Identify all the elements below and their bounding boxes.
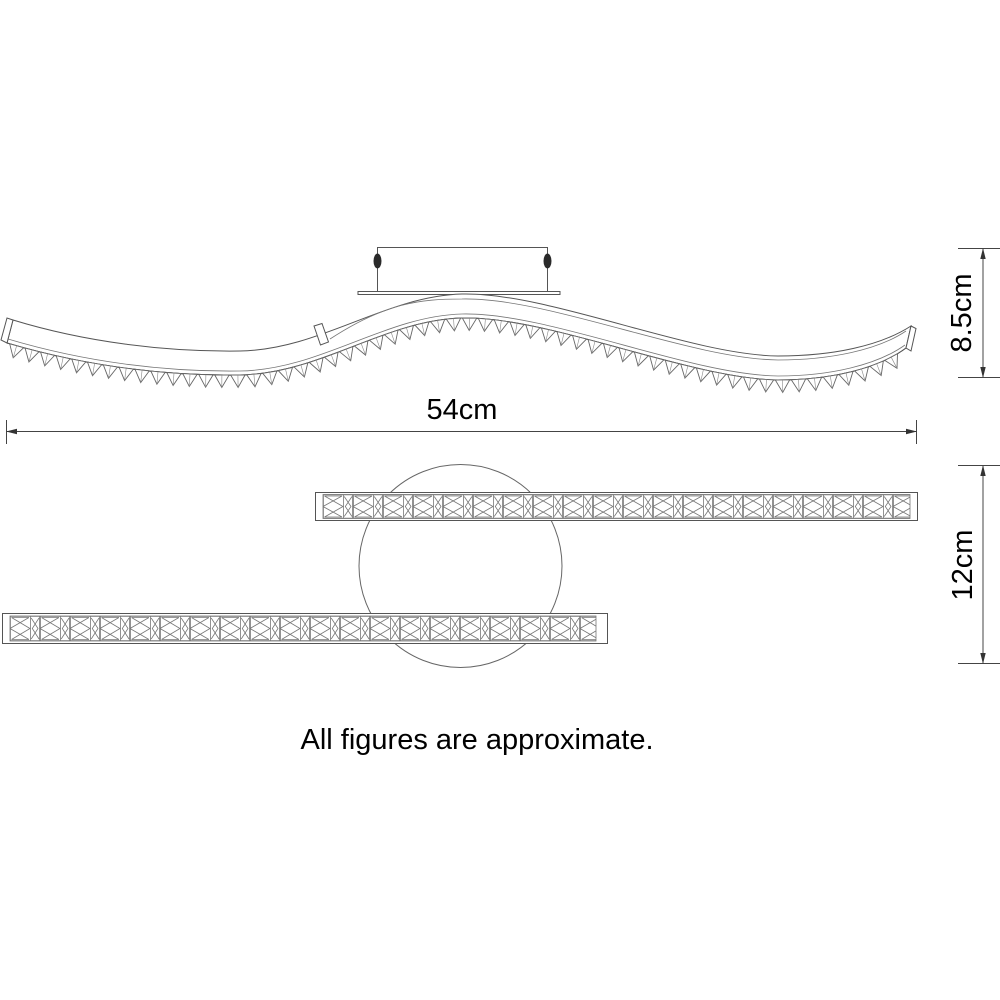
crystal-bar-lower xyxy=(3,614,608,644)
dimension-8-5cm-arrow-top xyxy=(980,248,985,259)
dimension-8-5cm-label: 8.5cm xyxy=(946,274,978,353)
diagram-canvas: 54cm 8.5cm 12cm All figures are approxim… xyxy=(0,0,1000,1000)
dimension-12cm-arrow-top xyxy=(980,465,985,476)
wave-fixture-side-view xyxy=(1,294,916,393)
mount-clip-right xyxy=(544,254,552,269)
dimension-54cm: 54cm xyxy=(6,394,917,444)
dimension-diagram: 54cm 8.5cm 12cm All figures are approxim… xyxy=(0,0,1000,1000)
dimension-12cm: 12cm xyxy=(947,465,1000,664)
dimension-12cm-label: 12cm xyxy=(947,530,979,601)
dimension-54cm-arrow-right xyxy=(906,429,917,434)
mount-box xyxy=(358,248,560,295)
wave-band xyxy=(7,294,911,380)
mount-clip-left xyxy=(374,254,382,269)
dimension-8-5cm-arrow-bottom xyxy=(980,367,985,378)
dimension-12cm-arrow-bottom xyxy=(980,653,985,664)
dimension-54cm-label: 54cm xyxy=(427,394,498,426)
approximate-note: All figures are approximate. xyxy=(301,724,654,756)
dimension-8-5cm: 8.5cm xyxy=(946,248,1000,378)
dimension-54cm-arrow-left xyxy=(6,429,17,434)
crystal-bar-upper xyxy=(316,493,918,521)
